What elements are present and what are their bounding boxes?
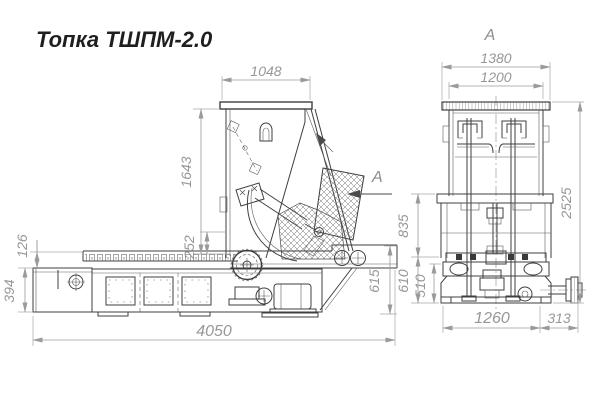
front-view-label: A	[484, 27, 496, 44]
output-shaft	[540, 277, 586, 303]
dim-beam-height: 610	[395, 269, 411, 293]
lever-mechanism	[227, 121, 261, 175]
rod-bracket	[502, 121, 526, 138]
dim-hopper-height: 1643	[178, 156, 194, 187]
dim-ash-box-height: 394	[1, 279, 17, 303]
dim-total-length: 4050	[196, 323, 232, 340]
technical-drawing: Топка ТШПМ-2.0	[0, 0, 600, 400]
inspection-panel	[106, 277, 135, 305]
keyhole-slot	[260, 123, 272, 141]
conveyor-housing	[33, 269, 322, 317]
dim-shaft-extension: 313	[547, 310, 571, 326]
dim-base-height: 510	[412, 274, 428, 298]
hopper-side	[220, 102, 364, 261]
inspection-panel	[144, 277, 173, 305]
side-view: A 1048 1643 252 126	[1, 63, 398, 346]
dim-hopper-width: 1048	[250, 63, 281, 79]
dim-frame-height: 835	[395, 214, 411, 238]
front-view: A	[395, 27, 586, 333]
dim-total-height: 2525	[558, 187, 574, 219]
support-frame	[437, 194, 553, 276]
page-title: Топка ТШПМ-2.0	[36, 27, 213, 52]
dim-chain-offset: 126	[14, 234, 30, 258]
inspection-panel	[182, 277, 211, 305]
dim-rim-width: 1380	[480, 50, 511, 66]
rod-bracket	[458, 121, 482, 138]
dim-body-width: 1200	[480, 69, 511, 85]
dim-conveyor-height: 615	[366, 269, 382, 293]
drawing-page: Топка ТШПМ-2.0	[0, 0, 600, 400]
view-arrow-label: A	[371, 169, 383, 186]
ash-box	[33, 268, 92, 312]
chain-conveyor	[83, 251, 237, 261]
dim-throat-height: 252	[181, 235, 197, 260]
dim-base-width: 1260	[474, 310, 510, 327]
front-view-dimensions: 1380 1200 2525 835 610 510	[395, 50, 584, 333]
